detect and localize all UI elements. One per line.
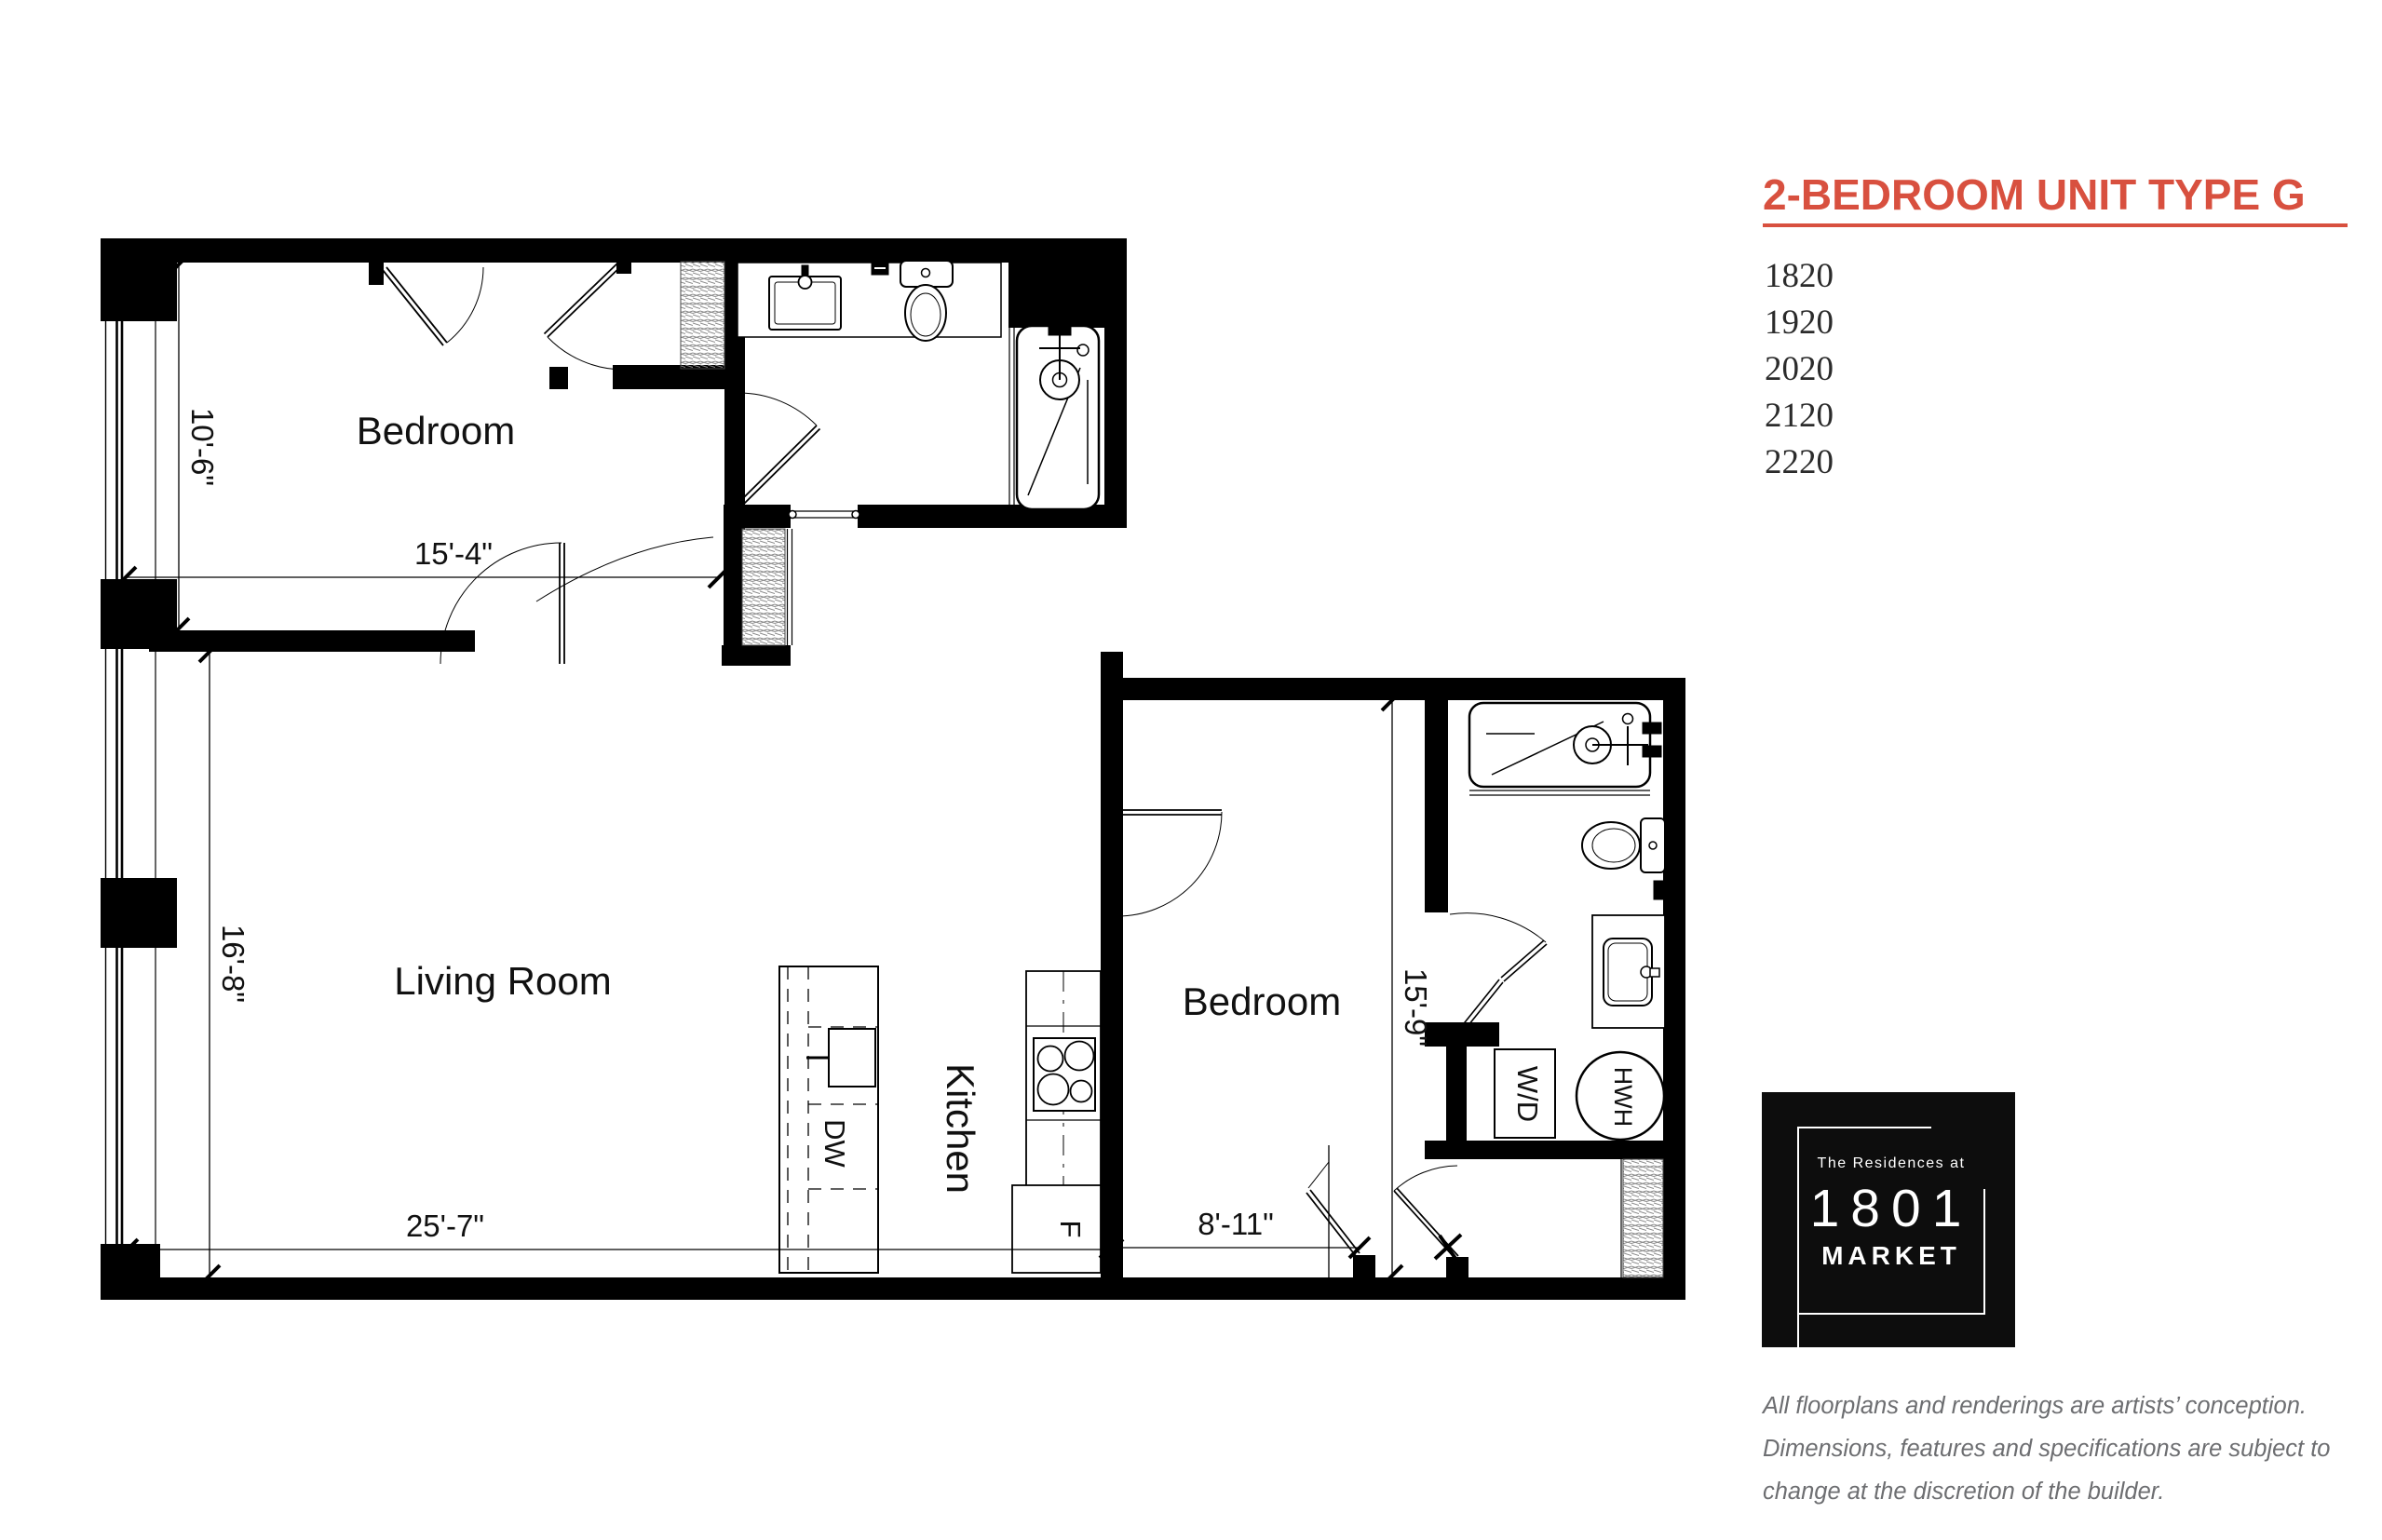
shower-valve-icon	[1643, 746, 1661, 757]
cased-opening	[789, 511, 859, 519]
dim-living-depth: 16'-8"	[216, 925, 250, 1003]
logo-number: 1801	[1793, 1178, 1989, 1239]
door-swing-arc	[536, 537, 713, 601]
door-leaf	[1306, 1190, 1360, 1256]
dim-bedroom2-depth: 15'-9"	[1399, 968, 1433, 1047]
logo-frame	[1797, 1313, 1985, 1315]
shower-valve-icon	[1049, 326, 1071, 335]
room-label-kitchen: Kitchen	[939, 1063, 982, 1194]
kitchen-sink	[829, 1029, 875, 1087]
tub-drain-icon	[1077, 344, 1089, 356]
wall-segment	[149, 630, 475, 652]
wall-segment	[1425, 678, 1448, 912]
label-fridge: F	[1054, 1221, 1087, 1238]
closet-hatch	[742, 529, 785, 645]
disclaimer-line: change at the discretion of the builder.	[1763, 1470, 2359, 1513]
wall-segment	[724, 528, 742, 647]
dim-ticks	[115, 254, 1402, 1286]
toilet-flush	[922, 269, 930, 277]
dim-bedroom1-width: 15'-4"	[414, 536, 493, 571]
toilet-flush	[1649, 842, 1657, 849]
shower-valve-icon	[1643, 723, 1661, 734]
door-leaf	[1457, 940, 1547, 1034]
window-glazing	[117, 321, 123, 1244]
wall-segment	[1446, 1257, 1468, 1281]
faucet-icon	[1650, 968, 1659, 977]
wall-segment	[722, 645, 791, 666]
door-leaf	[738, 426, 820, 507]
toilet-bowl-inner	[911, 293, 941, 336]
brand-logo: The Residences at 1801 MARKET	[1762, 1092, 2015, 1347]
wall-column	[101, 579, 177, 649]
floorplan-drawing: 10'-6" 15'-4" 16'-8" 25'-7" 8'-11" 15'-9…	[0, 0, 2382, 1540]
disclaimer-line: Dimensions, features and specifications …	[1763, 1427, 2359, 1470]
dim-bedroom1-depth: 10'-6"	[185, 408, 220, 486]
label-washer-dryer: W/D	[1511, 1066, 1544, 1122]
wall-segment	[1104, 238, 1127, 528]
door-leaf	[560, 543, 564, 664]
dim-bedroom2-width: 8'-11"	[1198, 1207, 1274, 1241]
unit-number: 2220	[1765, 439, 1834, 486]
wall-segment	[369, 263, 384, 285]
door-swing-arc	[447, 267, 483, 343]
door-swing-arc	[1450, 913, 1546, 942]
door-swing-arc	[738, 393, 817, 426]
window-wall	[106, 263, 156, 1277]
faucet-icon	[799, 276, 812, 289]
logo-name: MARKET	[1799, 1241, 1983, 1271]
wall-segment	[104, 238, 1127, 263]
label-dishwasher: DW	[819, 1119, 851, 1168]
closet-hatch	[681, 262, 724, 369]
unit-number: 1820	[1765, 253, 1834, 300]
wall-segment	[1663, 678, 1685, 1300]
door-leaf	[1117, 810, 1222, 815]
burner-icon	[1038, 1074, 1069, 1105]
towel-bar-icon	[1654, 881, 1667, 899]
door-swing-arc	[548, 337, 624, 370]
wall-segment	[1446, 1022, 1467, 1159]
closet-edges	[788, 529, 1622, 1277]
door-leaf	[383, 267, 447, 345]
wall-segment	[1353, 1255, 1375, 1279]
wall-segment	[1425, 1141, 1685, 1159]
page-title: 2-BEDROOM UNIT TYPE G	[1763, 169, 2306, 220]
wall-column	[101, 878, 177, 948]
room-label-living: Living Room	[394, 959, 611, 1003]
disclaimer-text: All floorplans and renderings are artist…	[1763, 1385, 2359, 1513]
room-label-bedroom1: Bedroom	[357, 409, 515, 453]
walls	[101, 238, 1685, 1300]
floorplan-page: 10'-6" 15'-4" 16'-8" 25'-7" 8'-11" 15'-9…	[0, 0, 2382, 1540]
title-underline	[1763, 223, 2348, 227]
burner-icon	[1071, 1081, 1092, 1102]
door-swing-arc	[1308, 1162, 1329, 1188]
room-label-bedroom2: Bedroom	[1183, 979, 1341, 1023]
dim-living-width: 25'-7"	[406, 1209, 484, 1243]
dimensions: 10'-6" 15'-4" 16'-8" 25'-7" 8'-11" 15'-9…	[115, 254, 1433, 1286]
wall-column	[101, 238, 177, 321]
unit-number-list: 1820 1920 2020 2120 2220	[1765, 253, 1834, 486]
label-water-heater: HWH	[1609, 1067, 1637, 1127]
closet-hatch	[1623, 1159, 1663, 1277]
door-leaf	[545, 261, 625, 338]
logo-frame	[1797, 1127, 1931, 1128]
door-tick	[1435, 1235, 1461, 1260]
unit-number: 2020	[1765, 346, 1834, 393]
door-swing-arc	[1117, 812, 1222, 916]
disclaimer-line: All floorplans and renderings are artist…	[1763, 1385, 2359, 1427]
burner-icon	[1065, 1042, 1094, 1071]
wall-segment	[549, 367, 568, 389]
logo-tagline: The Residences at	[1799, 1155, 1983, 1172]
burner-icon	[1038, 1047, 1063, 1072]
toilet-bowl-inner	[1592, 829, 1635, 862]
door-swing-arc	[1394, 1166, 1457, 1191]
tub-drain-icon	[1623, 714, 1633, 724]
wall-segment	[1101, 652, 1123, 1277]
unit-number: 1920	[1765, 300, 1834, 346]
unit-number: 2120	[1765, 393, 1834, 439]
